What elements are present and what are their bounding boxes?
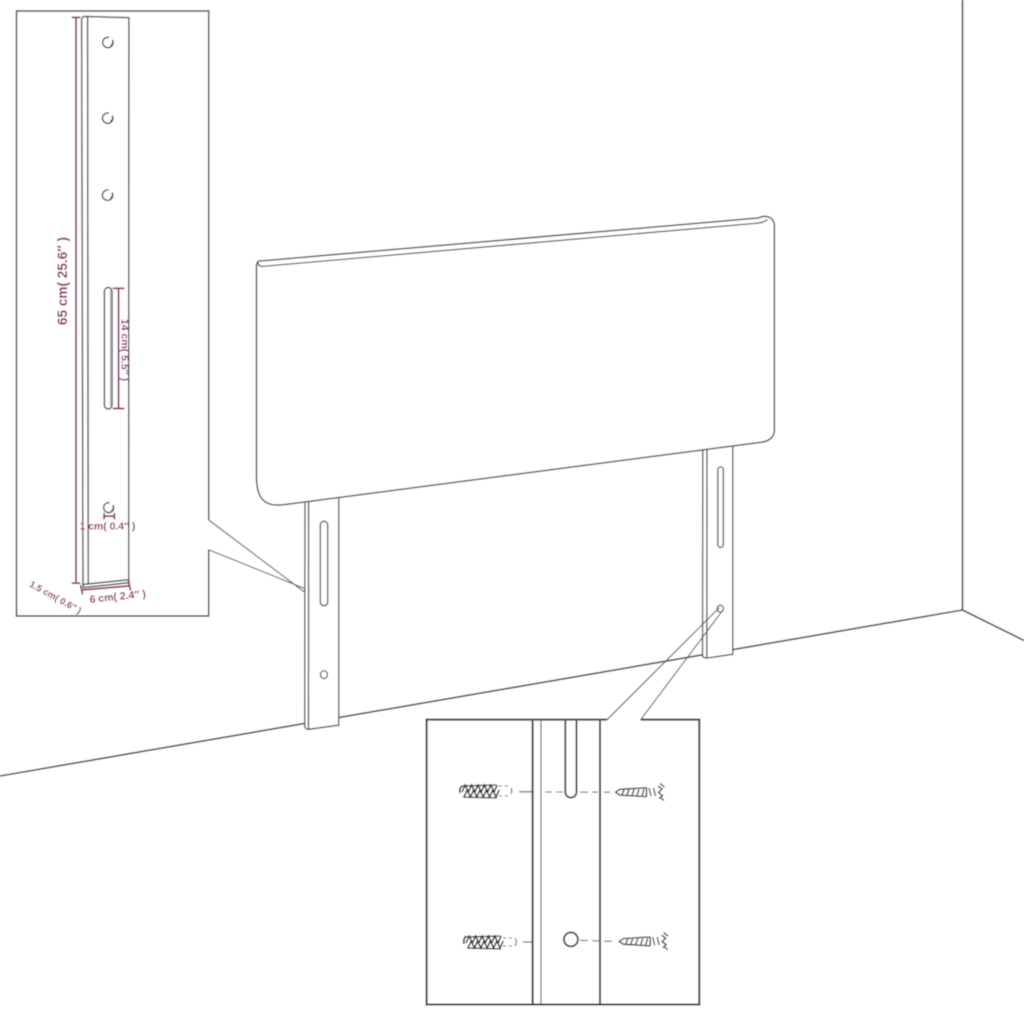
svg-text:65 cm( 25.6″ ): 65 cm( 25.6″ ) <box>55 237 70 325</box>
svg-text:1 cm( 0.4″ ): 1 cm( 0.4″ ) <box>80 522 136 533</box>
svg-text:14 cm( 5.5″ ): 14 cm( 5.5″ ) <box>119 319 131 381</box>
